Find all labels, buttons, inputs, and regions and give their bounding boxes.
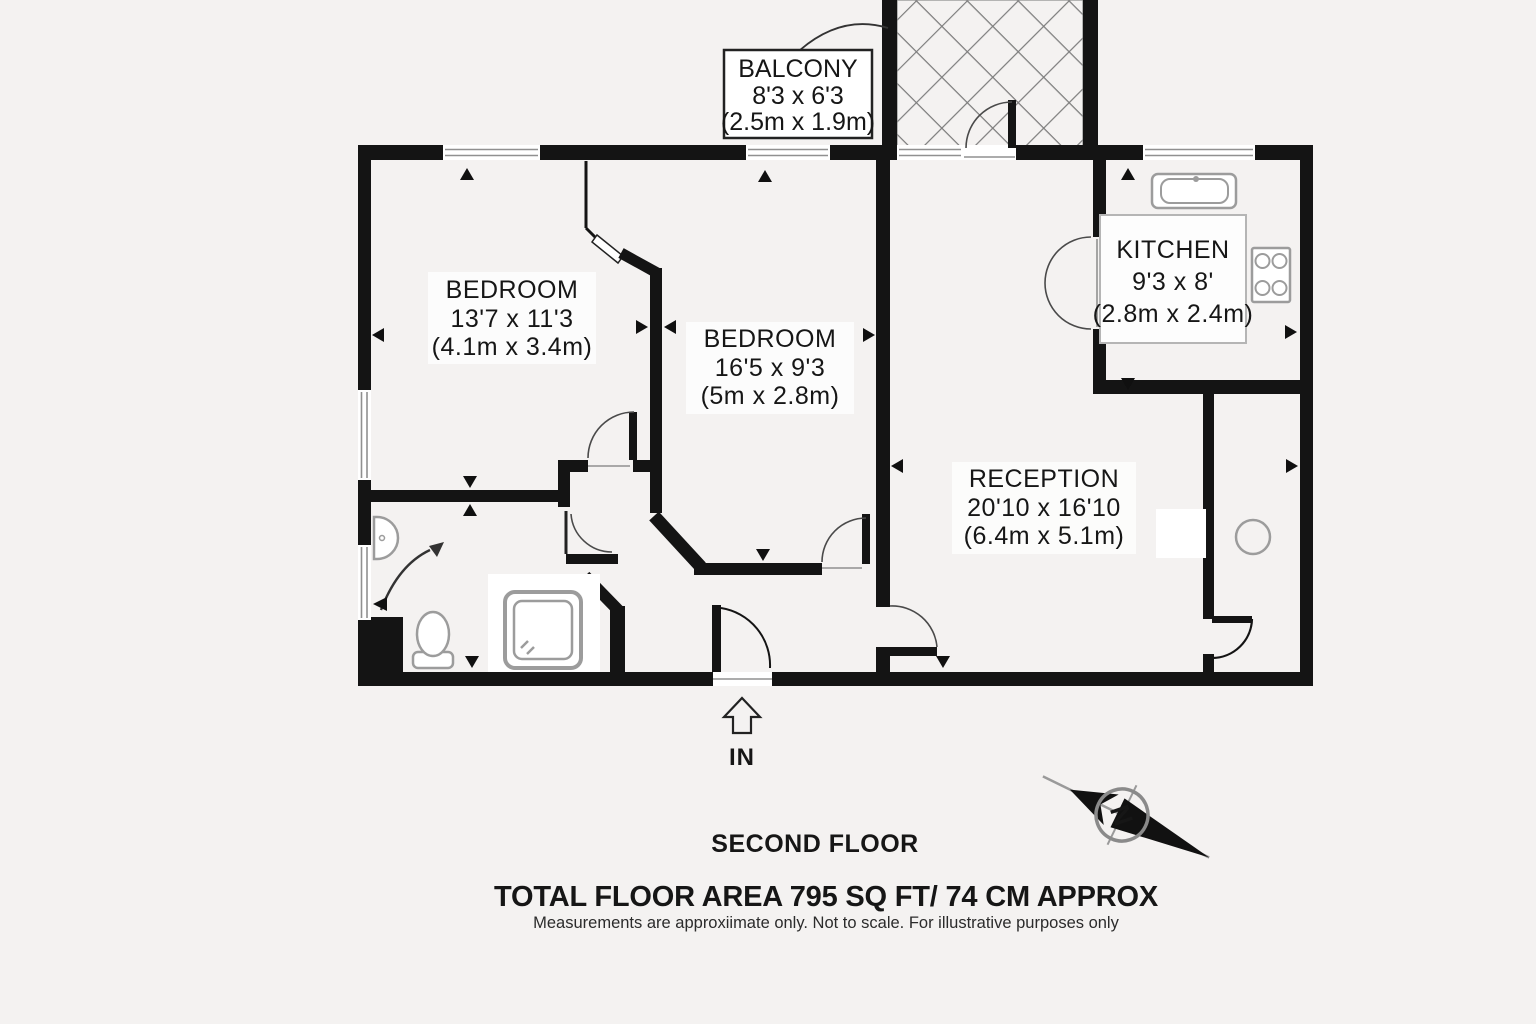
- balcony-metric: (2.5m x 1.9m): [721, 108, 875, 136]
- window: [358, 390, 371, 480]
- bedroom1-imperial: 13'7 x 11'3: [450, 305, 573, 333]
- balcony-name: BALCONY: [738, 55, 858, 83]
- window: [358, 545, 371, 620]
- bedroom1-name: BEDROOM: [446, 276, 579, 304]
- white-patch: [1156, 509, 1206, 558]
- door-leaf: [1008, 100, 1016, 148]
- total-area-title: TOTAL FLOOR AREA 795 SQ FT/ 74 CM APPROX: [494, 881, 1159, 913]
- floor-title: SECOND FLOOR: [711, 830, 918, 858]
- disclaimer-text: Measurements are approxiimate only. Not …: [533, 914, 1119, 932]
- reception-metric: (6.4m x 5.1m): [964, 522, 1125, 550]
- shower-icon: [488, 574, 600, 672]
- window: [897, 145, 963, 160]
- entrance-label: IN: [729, 744, 755, 771]
- bedroom2-name: BEDROOM: [704, 325, 837, 353]
- floorplan-canvas: BEDROOM 13'7 x 11'3 (4.1m x 3.4m) BEDROO…: [0, 0, 1536, 1024]
- toilet-icon: [413, 612, 453, 668]
- kitchen-sink-icon: [1152, 174, 1236, 208]
- wall-right: [1300, 145, 1313, 686]
- reception-name: RECEPTION: [969, 465, 1119, 493]
- wall-reception: [876, 160, 890, 607]
- wall-bathroom-top: [358, 490, 570, 502]
- balcony-wall-left: [882, 0, 897, 150]
- window: [746, 145, 830, 160]
- wall-bottom: [358, 672, 1313, 686]
- balcony-hatch: [897, 0, 1083, 147]
- wall-bedroom-divider: [650, 268, 662, 513]
- balcony-area: [882, 0, 1098, 150]
- kitchen-metric: (2.8m x 2.4m): [1093, 300, 1254, 328]
- window: [1143, 145, 1255, 160]
- window: [443, 145, 540, 160]
- kitchen-imperial: 9'3 x 8': [1132, 268, 1214, 296]
- bedroom2-imperial: 16'5 x 9'3: [715, 354, 825, 382]
- balcony-wall-right: [1083, 0, 1098, 150]
- bedroom2-metric: (5m x 2.8m): [701, 382, 840, 410]
- bedroom1-metric: (4.1m x 3.4m): [432, 333, 593, 361]
- reception-imperial: 20'10 x 16'10: [967, 494, 1121, 522]
- kitchen-name: KITCHEN: [1116, 236, 1229, 264]
- balcony-imperial: 8'3 x 6'3: [752, 82, 844, 110]
- hob-icon: [1252, 248, 1290, 302]
- wall-corner-block: [358, 617, 403, 686]
- floorplan-page: BEDROOM 13'7 x 11'3 (4.1m x 3.4m) BEDROO…: [0, 0, 1536, 1024]
